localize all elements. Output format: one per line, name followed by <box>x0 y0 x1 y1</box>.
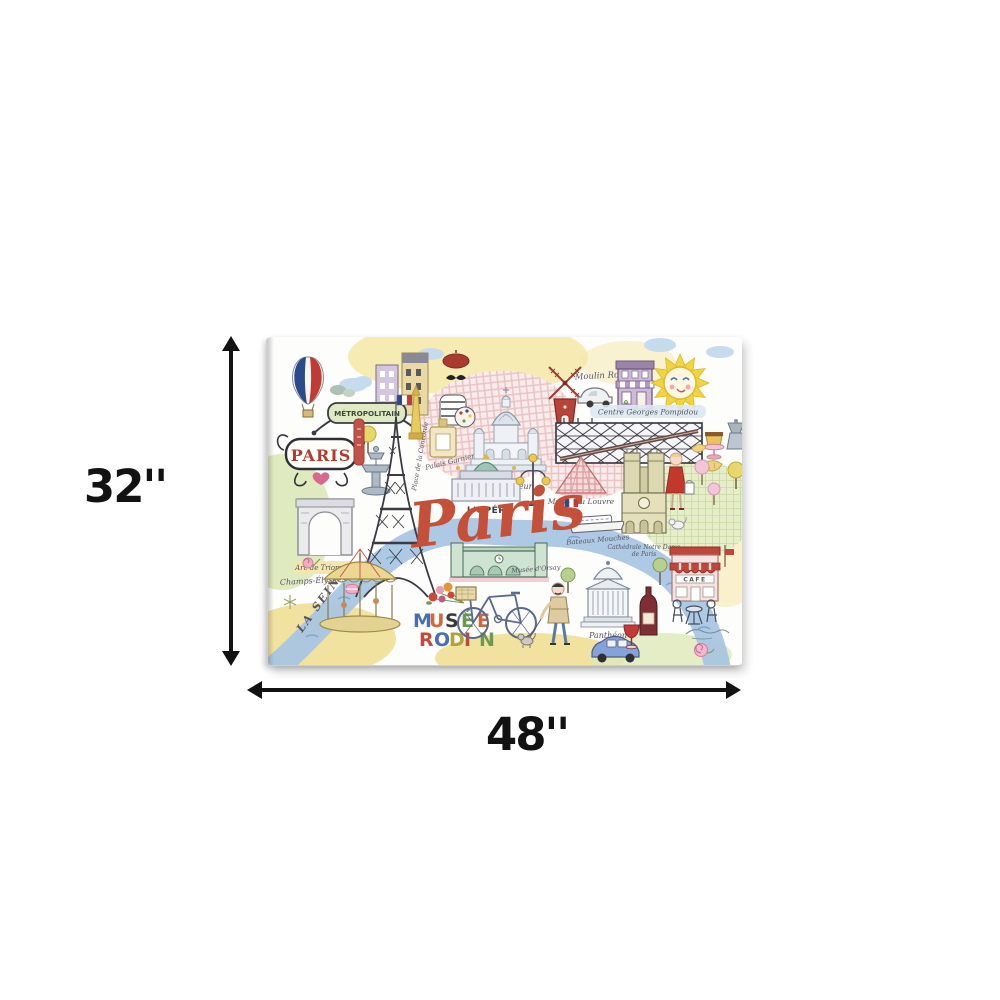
paris-map-illustration: LA SEINE <box>268 337 742 665</box>
svg-text:de Paris: de Paris <box>632 551 657 558</box>
svg-text:R: R <box>419 629 434 651</box>
width-dimension-arrow <box>247 681 741 699</box>
paris-script-title: Paris <box>403 469 589 563</box>
arrow-down-icon <box>222 651 240 666</box>
svg-text:I: I <box>464 629 471 651</box>
paris-sign-label: PARIS <box>291 446 352 465</box>
boutique-icon <box>616 361 654 409</box>
svg-text:N: N <box>479 629 495 651</box>
metro-label: MÉTROPOLITAIN <box>334 409 400 418</box>
svg-text:O: O <box>434 629 450 651</box>
arrow-right-icon <box>726 681 741 699</box>
height-dimension-arrow <box>222 336 240 666</box>
french-flag-icon <box>397 395 412 405</box>
musee-rodin-title: M U S É E R O D I N <box>413 609 495 651</box>
macaron-icon <box>346 584 358 593</box>
width-dimension-label: 48'' <box>462 708 592 761</box>
hot-air-balloon-icon <box>293 357 324 417</box>
canvas-print: LA SEINE <box>268 337 742 665</box>
arrow-shaft <box>258 688 730 692</box>
height-dimension-label: 32'' <box>60 460 190 513</box>
pompidou-label: Centre Georges Pompidou <box>598 408 698 417</box>
product-dimension-figure: LA SEINE <box>0 0 1000 1000</box>
cafe-awning-label: CAFE <box>683 577 706 584</box>
car-icon-white <box>578 388 612 408</box>
arrow-shaft <box>229 347 233 655</box>
red-banner-icon <box>354 419 364 465</box>
